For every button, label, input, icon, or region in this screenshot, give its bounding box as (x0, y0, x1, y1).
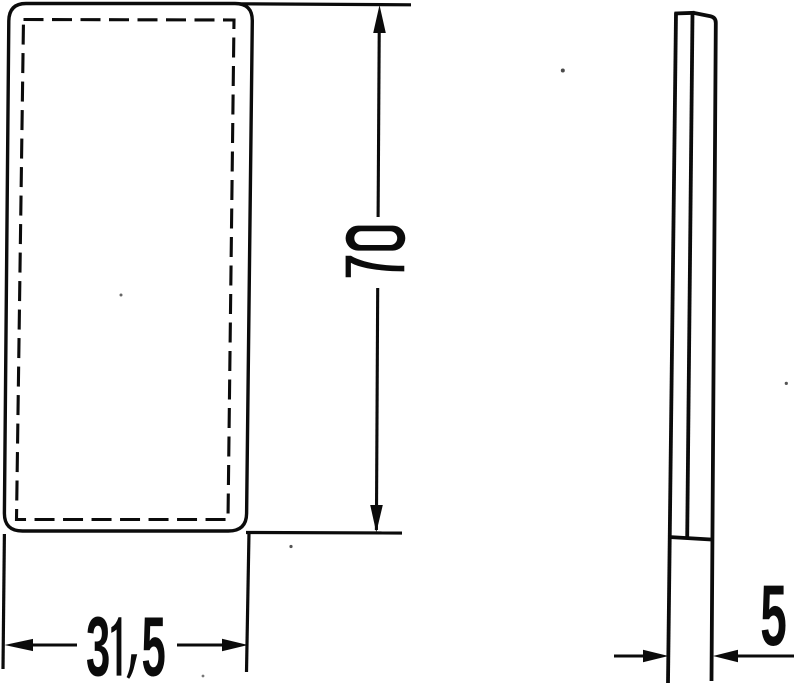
svg-text:5: 5 (141, 600, 165, 686)
svg-text:5: 5 (760, 567, 787, 663)
svg-text:3: 3 (86, 600, 110, 686)
